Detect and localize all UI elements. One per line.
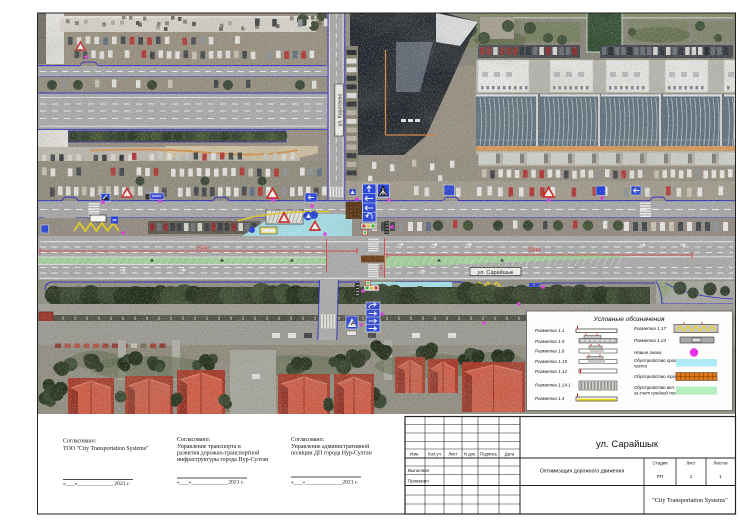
svg-text:1: 1	[690, 474, 693, 480]
svg-text:«___»_____________2021 г.: «___»_____________2021 г.	[63, 481, 131, 487]
svg-text:Лист: Лист	[686, 461, 696, 466]
svg-text:Разметка 1.1: Разметка 1.1	[535, 328, 565, 333]
svg-text:N док.: N док.	[464, 452, 476, 457]
svg-text:Разметка 1.17: Разметка 1.17	[634, 326, 666, 331]
svg-text:Управление транспорта и: Управление транспорта и	[177, 444, 242, 450]
svg-text:Разметка 1.5: Разметка 1.5	[535, 339, 565, 344]
svg-text:Разметка 1.23: Разметка 1.23	[634, 338, 666, 343]
svg-text:Согласовано:: Согласовано:	[63, 439, 97, 445]
svg-text:Разметка 1.6: Разметка 1.6	[535, 349, 565, 354]
svg-text:части: части	[634, 364, 648, 369]
svg-text:Проверил: Проверил	[408, 479, 429, 484]
svg-text:развития дорожно-транспортной: развития дорожно-транспортной	[177, 450, 260, 457]
svg-text:ул. Сарайшык: ул. Сарайшык	[596, 439, 659, 450]
svg-text:Изм.: Изм.	[410, 452, 419, 457]
svg-text:Согласовано:: Согласовано:	[291, 437, 325, 443]
svg-text:полиции ДП города Нур-Султан: полиции ДП города Нур-Султан	[291, 451, 373, 457]
svg-text:РП: РП	[657, 474, 664, 480]
svg-text:Управление административной: Управление административной	[291, 443, 370, 450]
svg-text:Разметка 1.12: Разметка 1.12	[535, 369, 567, 374]
svg-text:Кол.уч: Кол.уч	[428, 452, 441, 457]
svg-text:Оптимизация дорожного движения: Оптимизация дорожного движения	[540, 469, 625, 475]
svg-text:Согласовано:: Согласовано:	[177, 437, 211, 443]
svg-text:Листов: Листов	[713, 461, 728, 466]
svg-text:инфраструктуры города Нур-Султ: инфраструктуры города Нур-Султан	[177, 456, 269, 463]
svg-text:Разметка 1.4: Разметка 1.4	[535, 396, 565, 401]
svg-text:"City Transportation Systems": "City Transportation Systems"	[652, 497, 728, 504]
svg-text:ТОО "City Transportation Syste: ТОО "City Transportation Systems"	[63, 446, 149, 452]
svg-text:«___»_____________2021 г.: «___»_____________2021 г.	[291, 480, 359, 486]
svg-text:Разметка 1.19: Разметка 1.19	[535, 359, 567, 364]
svg-text:Новые знаки: Новые знаки	[634, 350, 662, 355]
svg-text:Условные обозначения: Условные обозначения	[593, 315, 665, 323]
svg-text:1: 1	[719, 474, 722, 480]
svg-text:Лист: Лист	[448, 452, 457, 457]
svg-text:«___»_____________2021 г.: «___»_____________2021 г.	[177, 480, 245, 486]
svg-text:Стадия: Стадия	[653, 461, 669, 466]
svg-text:Подпись: Подпись	[480, 452, 498, 457]
svg-text:Разметка 1.14.1: Разметка 1.14.1	[535, 383, 571, 388]
svg-text:Выполнил: Выполнил	[408, 468, 430, 473]
svg-text:Дата: Дата	[505, 452, 515, 457]
